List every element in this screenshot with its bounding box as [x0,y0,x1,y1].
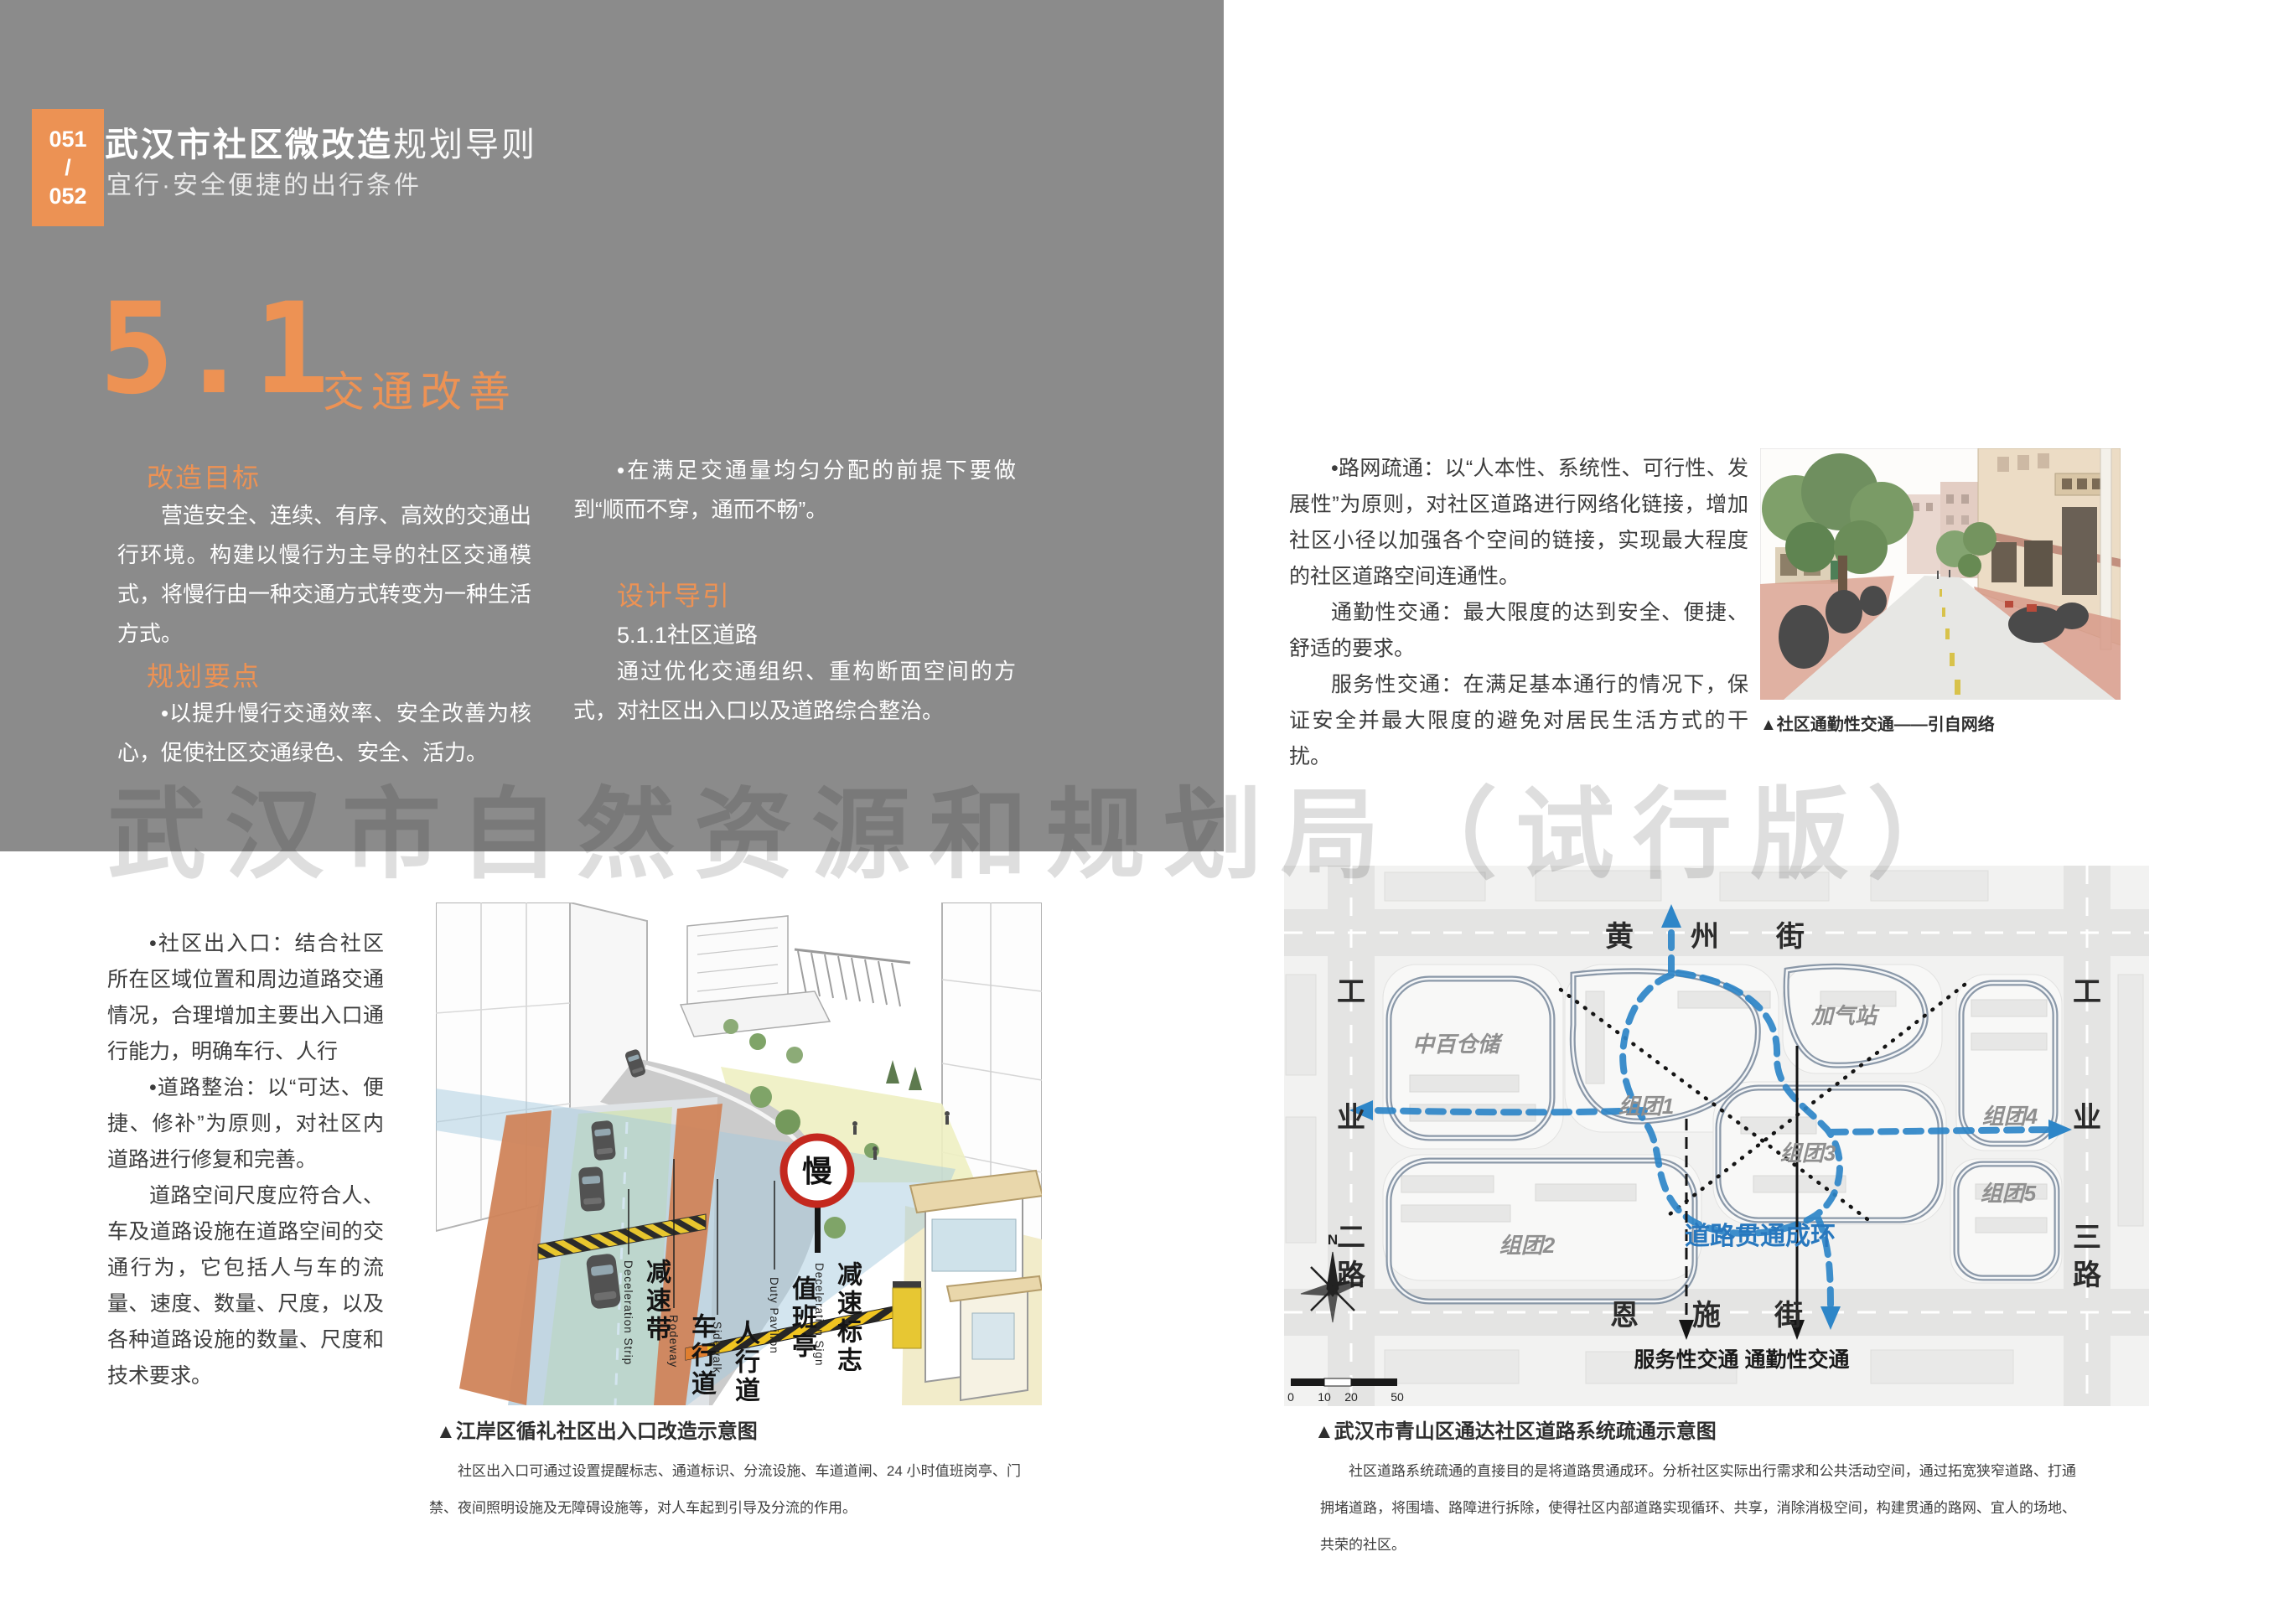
label-deceleration-sign-en: Deceleration Sign [813,1263,826,1367]
guide-subheading: 5.1.1社区道路 [617,617,758,649]
street-photo-sketch [1760,448,2121,700]
document-title: 武汉市社区微改造规划导则 [105,117,537,166]
document-title-light: 规划导则 [393,127,537,163]
ring-label: 道路贯通成环 [1685,1223,1836,1250]
commute-paragraph: 通勤性交通：最大限度的达到安全、便捷、舒适的要求。 [1289,595,1748,667]
axon-kiosk [947,1276,1042,1400]
area-label-gas-station: 加气站 [1810,1003,1880,1028]
label-duty-pavilion-en: Duty Pavilion [768,1277,780,1354]
map-caption-paragraph: 社区道路系统疏通的直接目的是将道路贯通成环。分析社区实际出行需求和公共活动空间，… [1320,1453,2076,1564]
road-network-paragraph: •路网疏通：以“人本性、系统性、可行性、发展性”为原则，对社区道路进行网络化链接… [1289,451,1748,595]
area-label-cluster-2: 组团2 [1499,1233,1556,1258]
area-label-cluster-1: 组团1 [1618,1094,1674,1119]
street-top-char-1: 黄 [1605,921,1634,953]
scale-tick-0: 0 [1287,1390,1294,1404]
legend-commuter-traffic: 通勤性交通 [1744,1347,1849,1372]
label-deceleration-strip-en: Deceleration Strip [622,1260,634,1365]
scale-tick-20: 20 [1344,1390,1358,1404]
road-system-map: 黄 州 街 恩 施 街 工 业 二 路 工 业 三 路 中百仓储 加气站 组团1… [1284,866,2149,1406]
street-right-char-1: 工 [2073,976,2101,1008]
street-top-char-2: 州 [1691,921,1719,953]
page-number-bottom: 052 [32,182,104,210]
axon-caption: ▲江岸区循礼社区出入口改造示意图 [436,1415,758,1444]
legend-service-traffic: 服务性交通 [1634,1347,1738,1372]
street-right-char-3: 三 [2073,1222,2101,1254]
street-right-char-4: 路 [2073,1259,2102,1291]
goal-paragraph: 营造安全、连续、有序、高效的交通出行环境。构建以慢行为主导的社区交通模式，将慢行… [117,496,531,654]
scale-tick-50: 50 [1391,1390,1404,1404]
guide-paragraph: 通过优化交通组织、重构断面空间的方式，对社区出入口以及道路综合整治。 [573,652,1016,731]
street-left-char-3: 二 [1337,1222,1365,1254]
street-bottom-char-2: 施 [1692,1300,1721,1332]
label-sidewalk-cn: 人行道 [726,1320,763,1405]
street-left-char-1: 工 [1337,976,1365,1008]
road-system-map-svg: 黄 州 街 恩 施 街 工 业 二 路 工 业 三 路 中百仓储 加气站 组团1… [1284,866,2149,1406]
document-subtitle: 宜行·安全便捷的出行条件 [106,164,422,201]
points-heading: 规划要点 [147,655,261,694]
section-title: 交通改善 [323,359,517,419]
service-paragraph: 服务性交通：在满足基本通行的情况下，保证安全并最大限度的避免对居民生活方式的干扰… [1289,667,1748,775]
section-number: 5.1 [99,277,331,422]
label-roadway-en: Rodeway [667,1315,680,1368]
photo-caption: ▲社区通勤性交通——引自网络 [1760,711,1995,735]
road-fix-paragraph: •道路整治：以“可达、便捷、修补”为原则，对社区内道路进行修复和完善。 [107,1070,384,1178]
street-bottom-char-1: 恩 [1610,1300,1639,1332]
map-caption: ▲武汉市青山区通达社区道路系统疏通示意图 [1314,1415,1717,1444]
street-right-char-2: 业 [2073,1102,2101,1134]
document-title-bold: 武汉市社区微改造 [105,127,393,163]
guide-heading: 设计导引 [617,575,731,613]
page-number-badge: 051 / 052 [32,109,104,226]
area-label-cluster-3: 组团3 [1780,1140,1836,1166]
street-left-char-2: 业 [1337,1102,1365,1134]
mid-bullet-paragraph: •在满足交通量均匀分配的前提下要做到“顺而不穿，通而不畅”。 [573,451,1016,530]
goal-heading: 改造目标 [147,457,261,495]
area-label-warehouse: 中百仓储 [1412,1032,1504,1057]
points-paragraph: •以提升慢行交通效率、安全改善为核心，促使社区交通绿色、安全、活力。 [117,694,531,773]
street-bottom-char-3: 街 [1774,1300,1803,1332]
area-label-cluster-4: 组团4 [1982,1104,2038,1129]
road-scale-paragraph: 道路空间尺度应符合人、车及道路设施在道路空间的交通行为，它包括人与车的流量、速度… [107,1178,384,1394]
label-deceleration-sign-cn: 减速标志 [828,1261,865,1375]
right-text-column: •路网疏通：以“人本性、系统性、可行性、发展性”为原则，对社区道路进行网络化链接… [1289,451,1748,775]
street-top-char-3: 街 [1775,921,1805,953]
slow-sign-text: 慢 [802,1154,832,1188]
street-photo [1760,448,2121,700]
page-number-top: 051 [32,125,104,153]
axon-caption-paragraph: 社区出入口可通过设置提醒标志、通道标识、分流设施、车道道闸、24 小时值班岗亭、… [429,1453,1021,1527]
label-sidewalk-en: Sidewalk [711,1321,723,1373]
north-label: N [1328,1232,1338,1248]
entrance-paragraph: •社区出入口：结合社区所在区域位置和周边道路交通情况，合理增加主要出入口通行能力… [107,926,384,1070]
bottom-left-column: •社区出入口：结合社区所在区域位置和周边道路交通情况，合理增加主要出入口通行能力… [107,926,384,1394]
document-page: 051 / 052 武汉市社区微改造规划导则 宜行·安全便捷的出行条件 5.1 … [0,0,2284,1624]
area-label-cluster-5: 组团5 [1981,1181,2037,1206]
page-number-divider: / [32,153,104,182]
axon-barrier-post [893,1281,921,1348]
scale-tick-10: 10 [1318,1390,1331,1404]
